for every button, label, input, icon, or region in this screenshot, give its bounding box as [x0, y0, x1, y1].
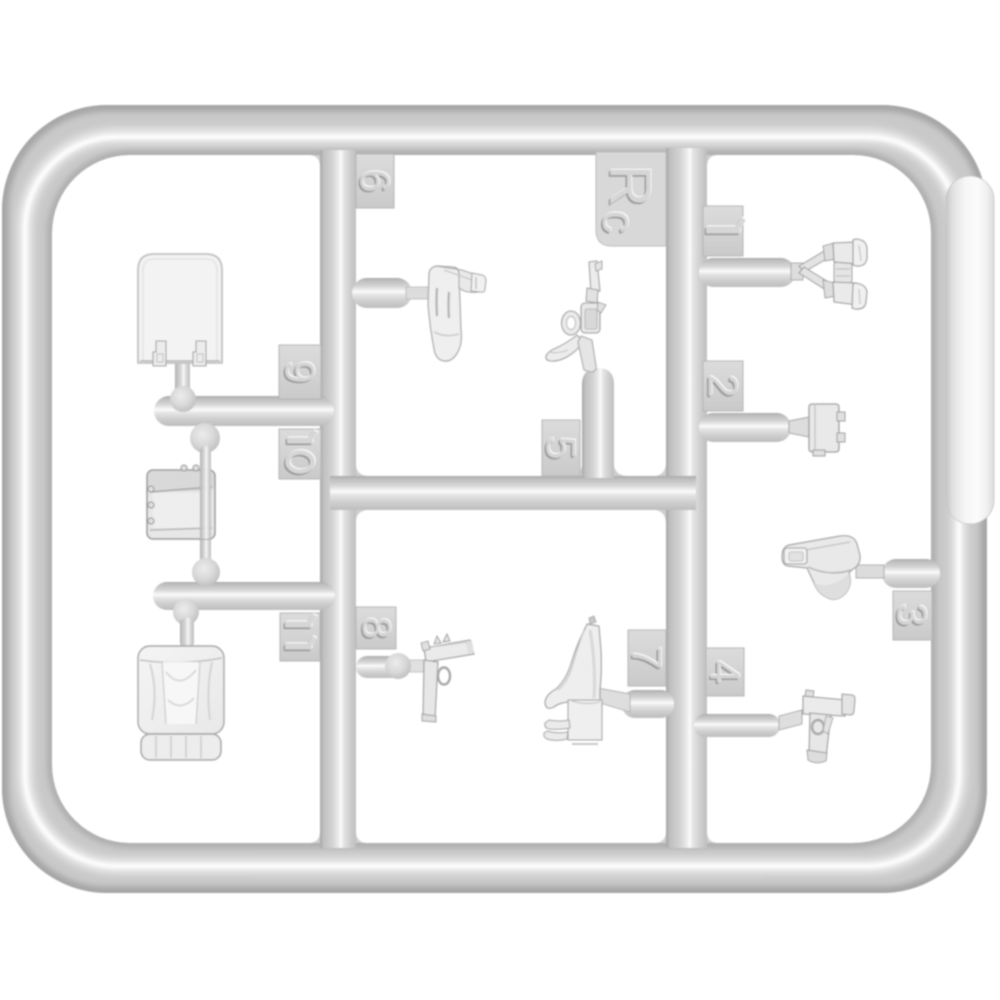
svg-text:5: 5	[538, 436, 585, 459]
svg-text:7: 7	[624, 646, 671, 669]
svg-text:9: 9	[277, 360, 324, 383]
svg-text:8: 8	[354, 617, 398, 639]
svg-text:c: c	[593, 211, 645, 234]
svg-text:3: 3	[889, 603, 936, 626]
svg-text:2: 2	[700, 374, 747, 397]
svg-text:6: 6	[352, 169, 399, 192]
svg-text:R: R	[598, 165, 663, 207]
svg-text:4: 4	[702, 660, 749, 683]
